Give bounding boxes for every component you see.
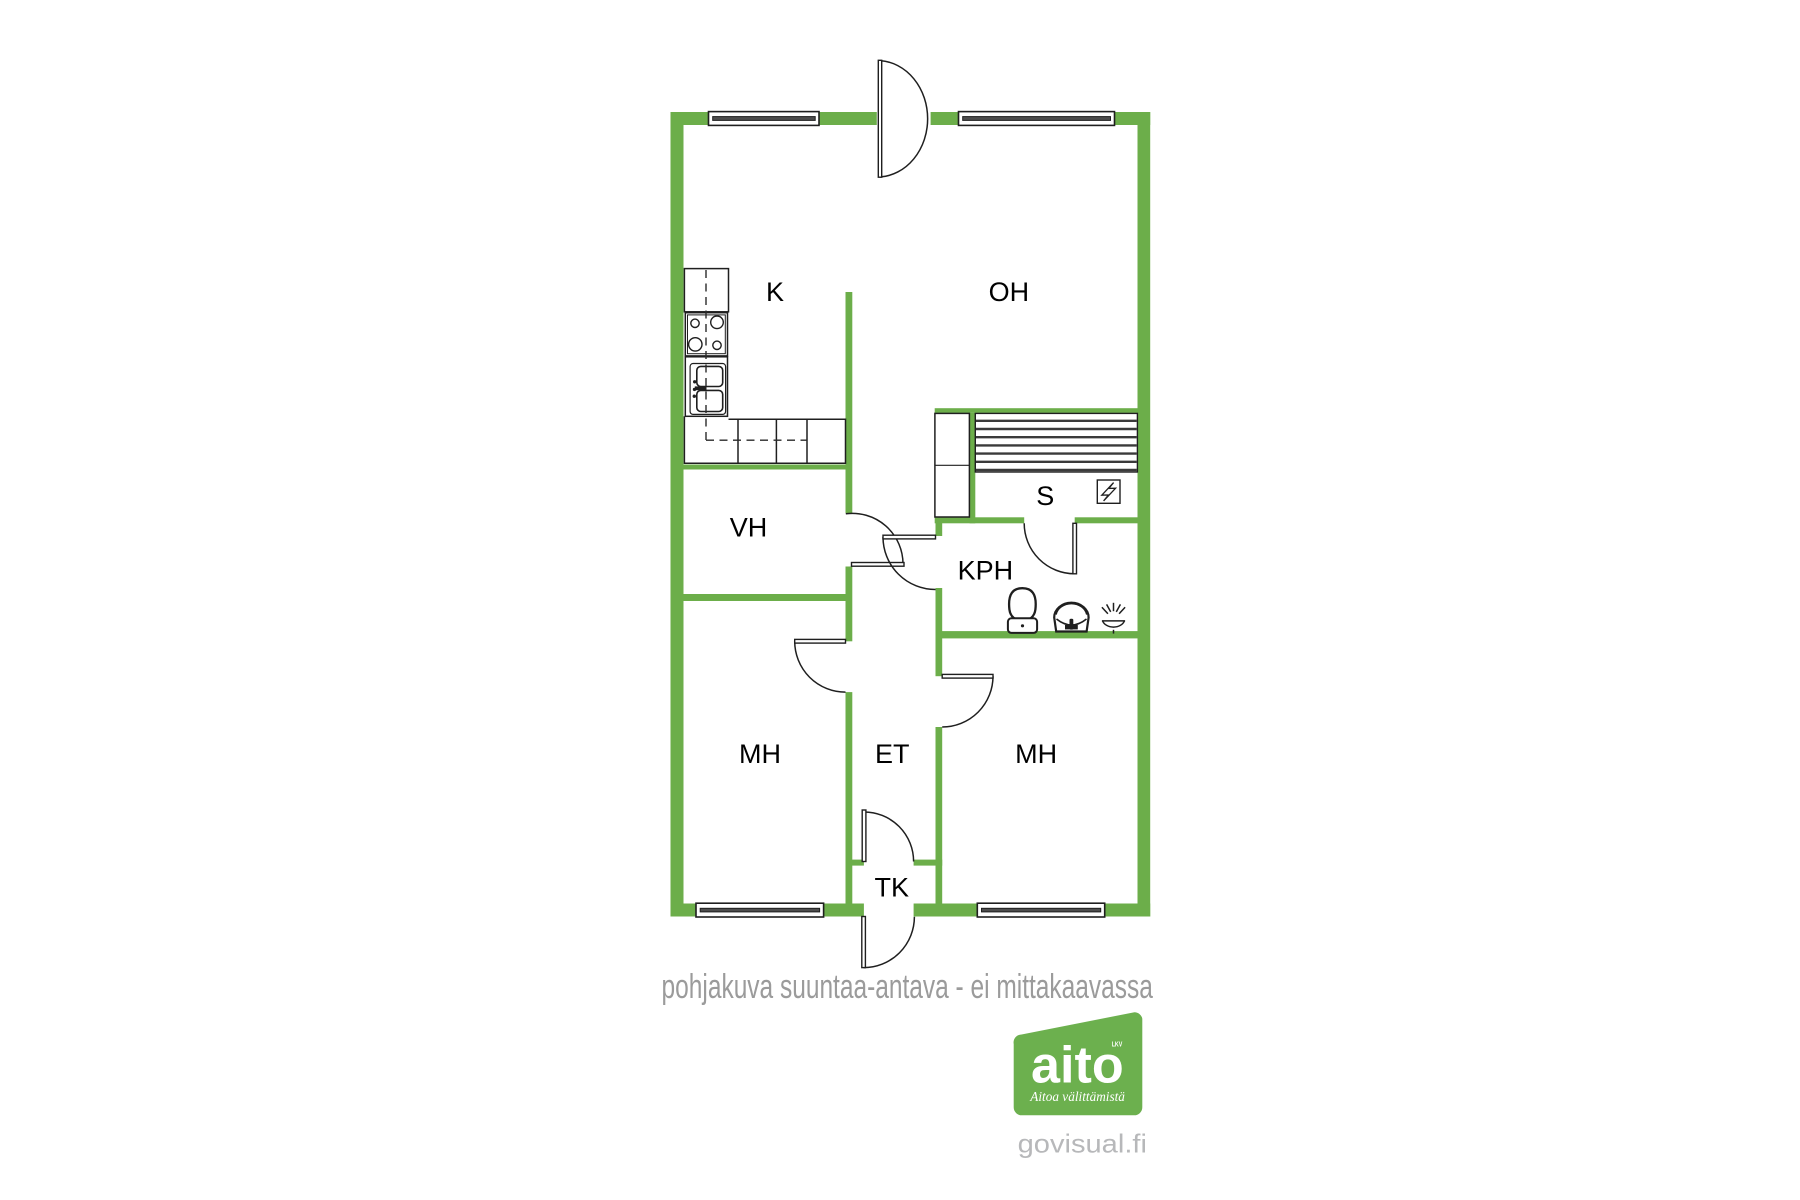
svg-text:govisual.fi: govisual.fi	[1018, 1128, 1147, 1158]
svg-text:OH: OH	[989, 277, 1030, 307]
svg-text:MH: MH	[739, 739, 781, 769]
svg-text:ET: ET	[875, 739, 910, 769]
svg-text:S: S	[1036, 481, 1054, 511]
svg-text:LKV: LKV	[1112, 1042, 1123, 1049]
svg-text:pohjakuva suuntaa-antava - ei: pohjakuva suuntaa-antava - ei mittakaava…	[662, 968, 1153, 1006]
svg-text:aito: aito	[1031, 1037, 1124, 1095]
svg-text:MH: MH	[1015, 739, 1057, 769]
svg-text:TK: TK	[875, 873, 910, 903]
svg-text:VH: VH	[730, 513, 768, 543]
svg-text:KPH: KPH	[958, 555, 1014, 585]
svg-text:Aitoa välittämistä: Aitoa välittämistä	[1029, 1090, 1125, 1105]
svg-text:K: K	[766, 277, 784, 307]
